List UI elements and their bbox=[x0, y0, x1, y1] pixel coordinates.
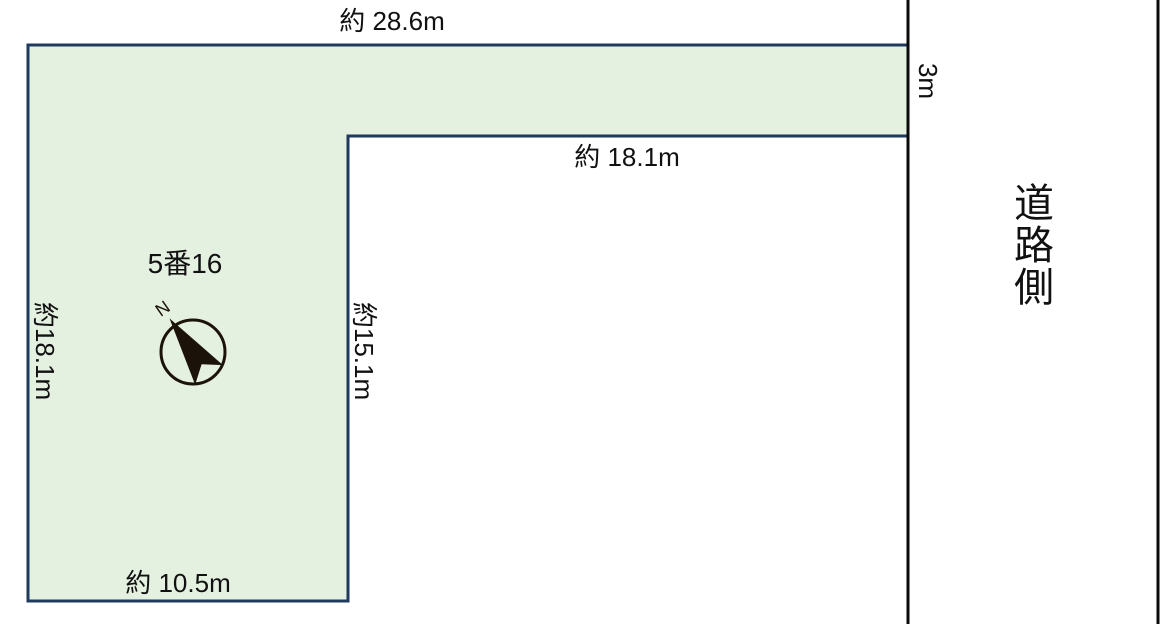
dimension-left: 約18.1m bbox=[28, 241, 62, 461]
lot-diagram: N 約 28.6m 約 18.1m 約 10.5m 約18.1m 約15.1m … bbox=[0, 0, 1167, 624]
dimension-inner-vertical: 約15.1m bbox=[347, 241, 381, 461]
road-side-label: 道路側 bbox=[1008, 182, 1052, 342]
dimension-top: 約 28.6m bbox=[282, 4, 502, 38]
lot-diagram-canvas: N bbox=[0, 0, 1167, 624]
dimension-strip-depth: 3m bbox=[911, 21, 945, 141]
lot-number-label: 5番16 bbox=[85, 247, 285, 281]
dimension-bottom: 約 10.5m bbox=[68, 566, 288, 600]
dimension-inner-horizontal: 約 18.1m bbox=[517, 140, 737, 174]
parcel-shape bbox=[28, 45, 908, 601]
